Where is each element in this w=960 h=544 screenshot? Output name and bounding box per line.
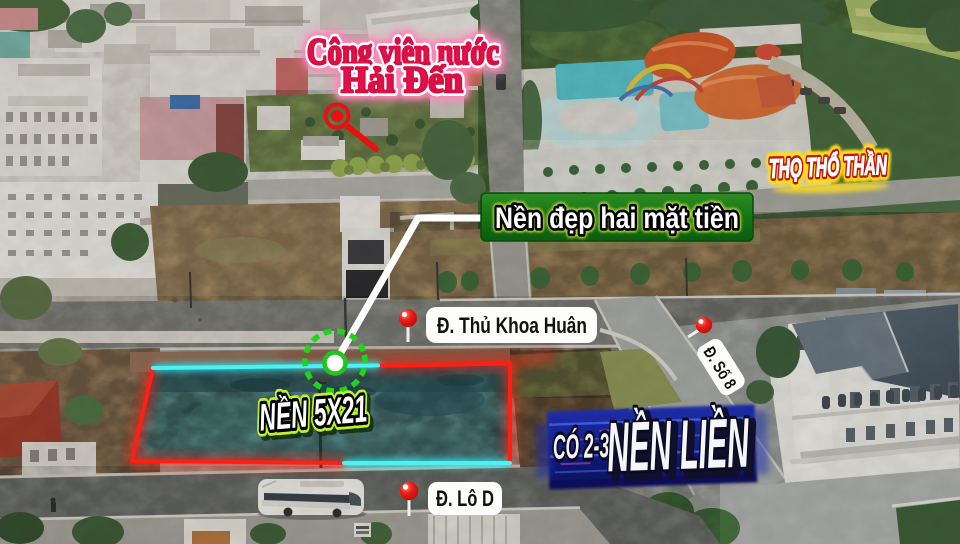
svg-text:Đ. Lô D: Đ. Lô D — [436, 486, 494, 511]
svg-text:NỀN LIỀN: NỀN LIỀN — [606, 402, 751, 487]
svg-text:CÓ 2-3: CÓ 2-3 — [552, 426, 610, 467]
svg-text:Hải Đến: Hải Đến — [341, 60, 463, 101]
svg-text:Đ. Thủ Khoa Huân: Đ. Thủ Khoa Huân — [437, 313, 587, 338]
svg-text:Nền đẹp hai mặt tiền: Nền đẹp hai mặt tiền — [495, 202, 739, 235]
svg-text:THỌ THỔ THẦN: THỌ THỔ THẦN — [768, 149, 887, 184]
